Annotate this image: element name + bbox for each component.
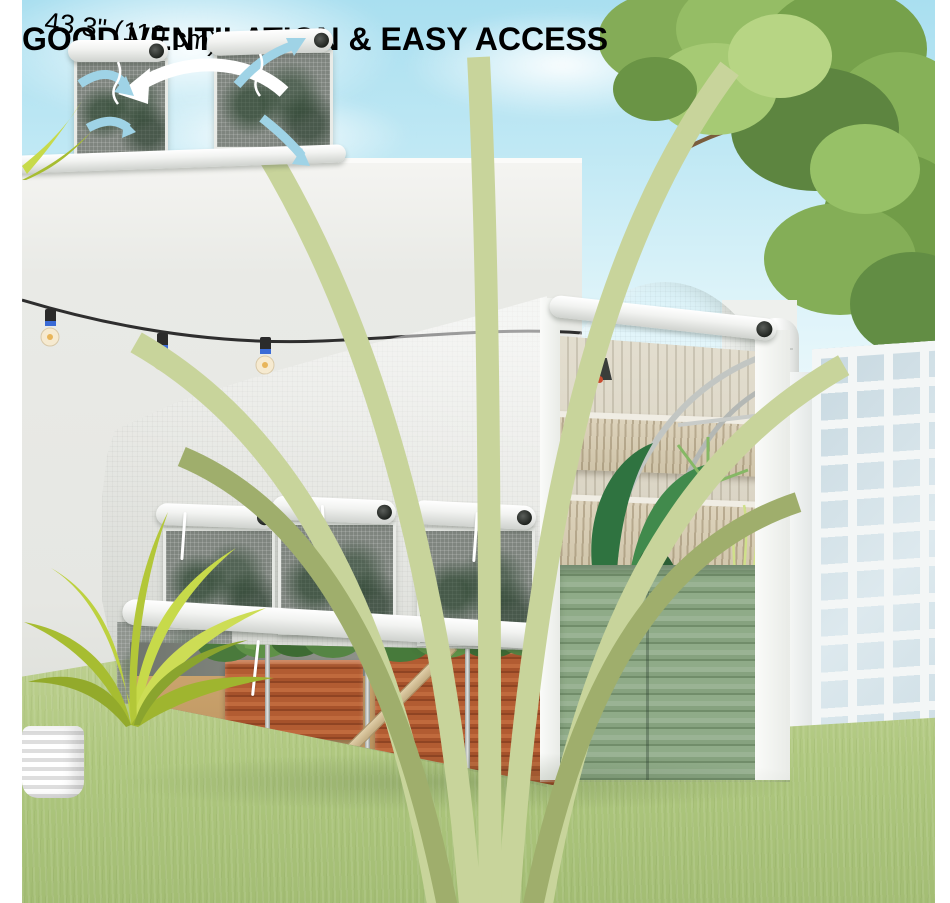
- product-infographic: GOOD VENTILATION & EASY ACCESS 43.3" (11…: [0, 0, 950, 903]
- airflow-arrow-white-icon: [118, 65, 284, 104]
- airflow-arrows: [22, 0, 336, 180]
- scene-photo: GOOD VENTILATION & EASY ACCESS 43.3" (11…: [22, 0, 935, 903]
